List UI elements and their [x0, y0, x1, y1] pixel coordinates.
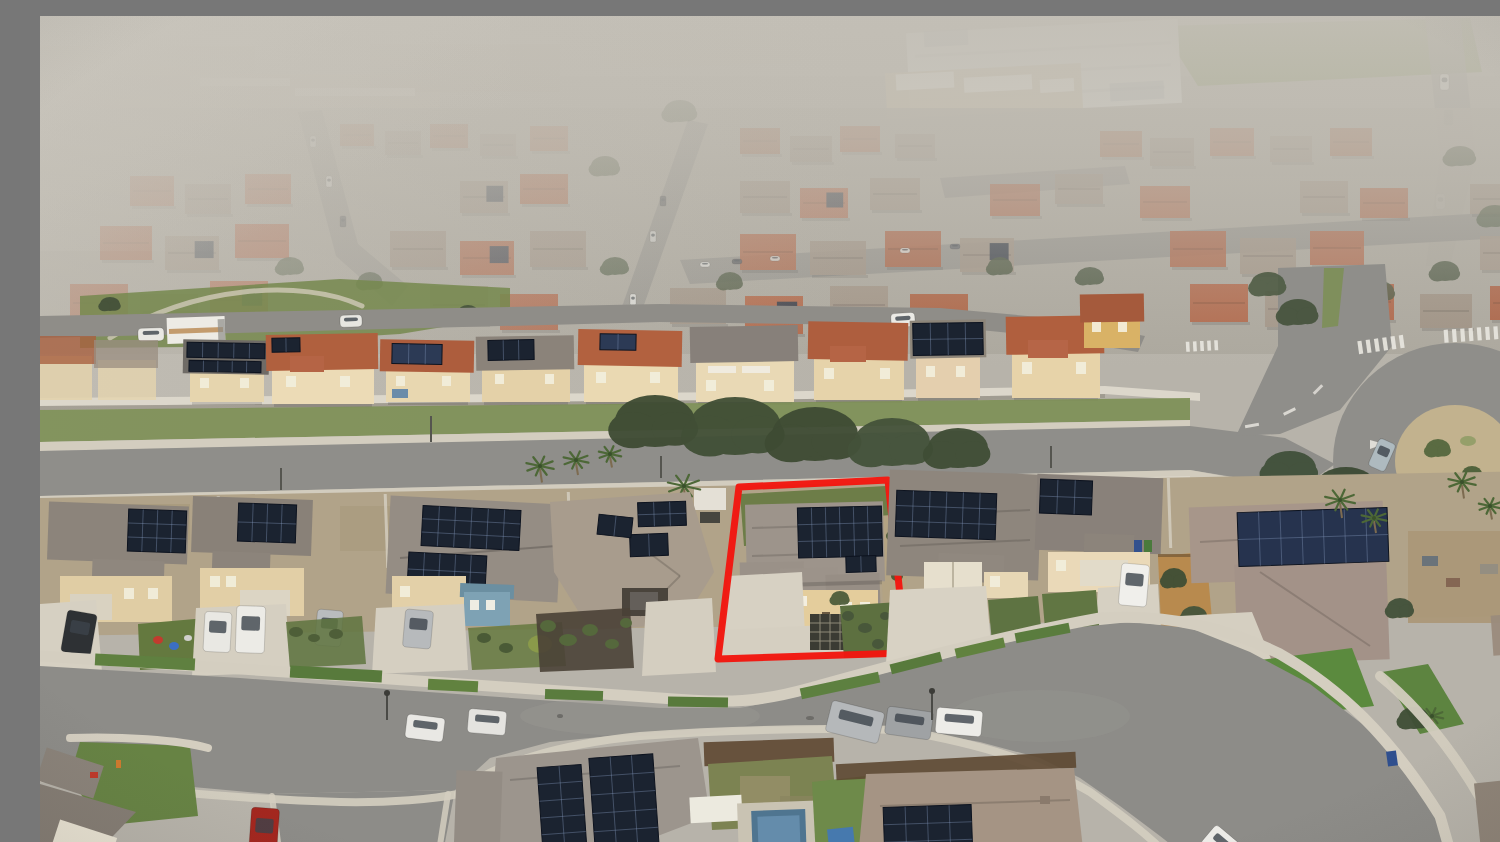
- rect: [40, 16, 1500, 842]
- scene-svg: [40, 16, 1500, 842]
- vignette: [40, 16, 1500, 842]
- aerial-photo: [40, 16, 1500, 842]
- scene-root: [40, 16, 1500, 842]
